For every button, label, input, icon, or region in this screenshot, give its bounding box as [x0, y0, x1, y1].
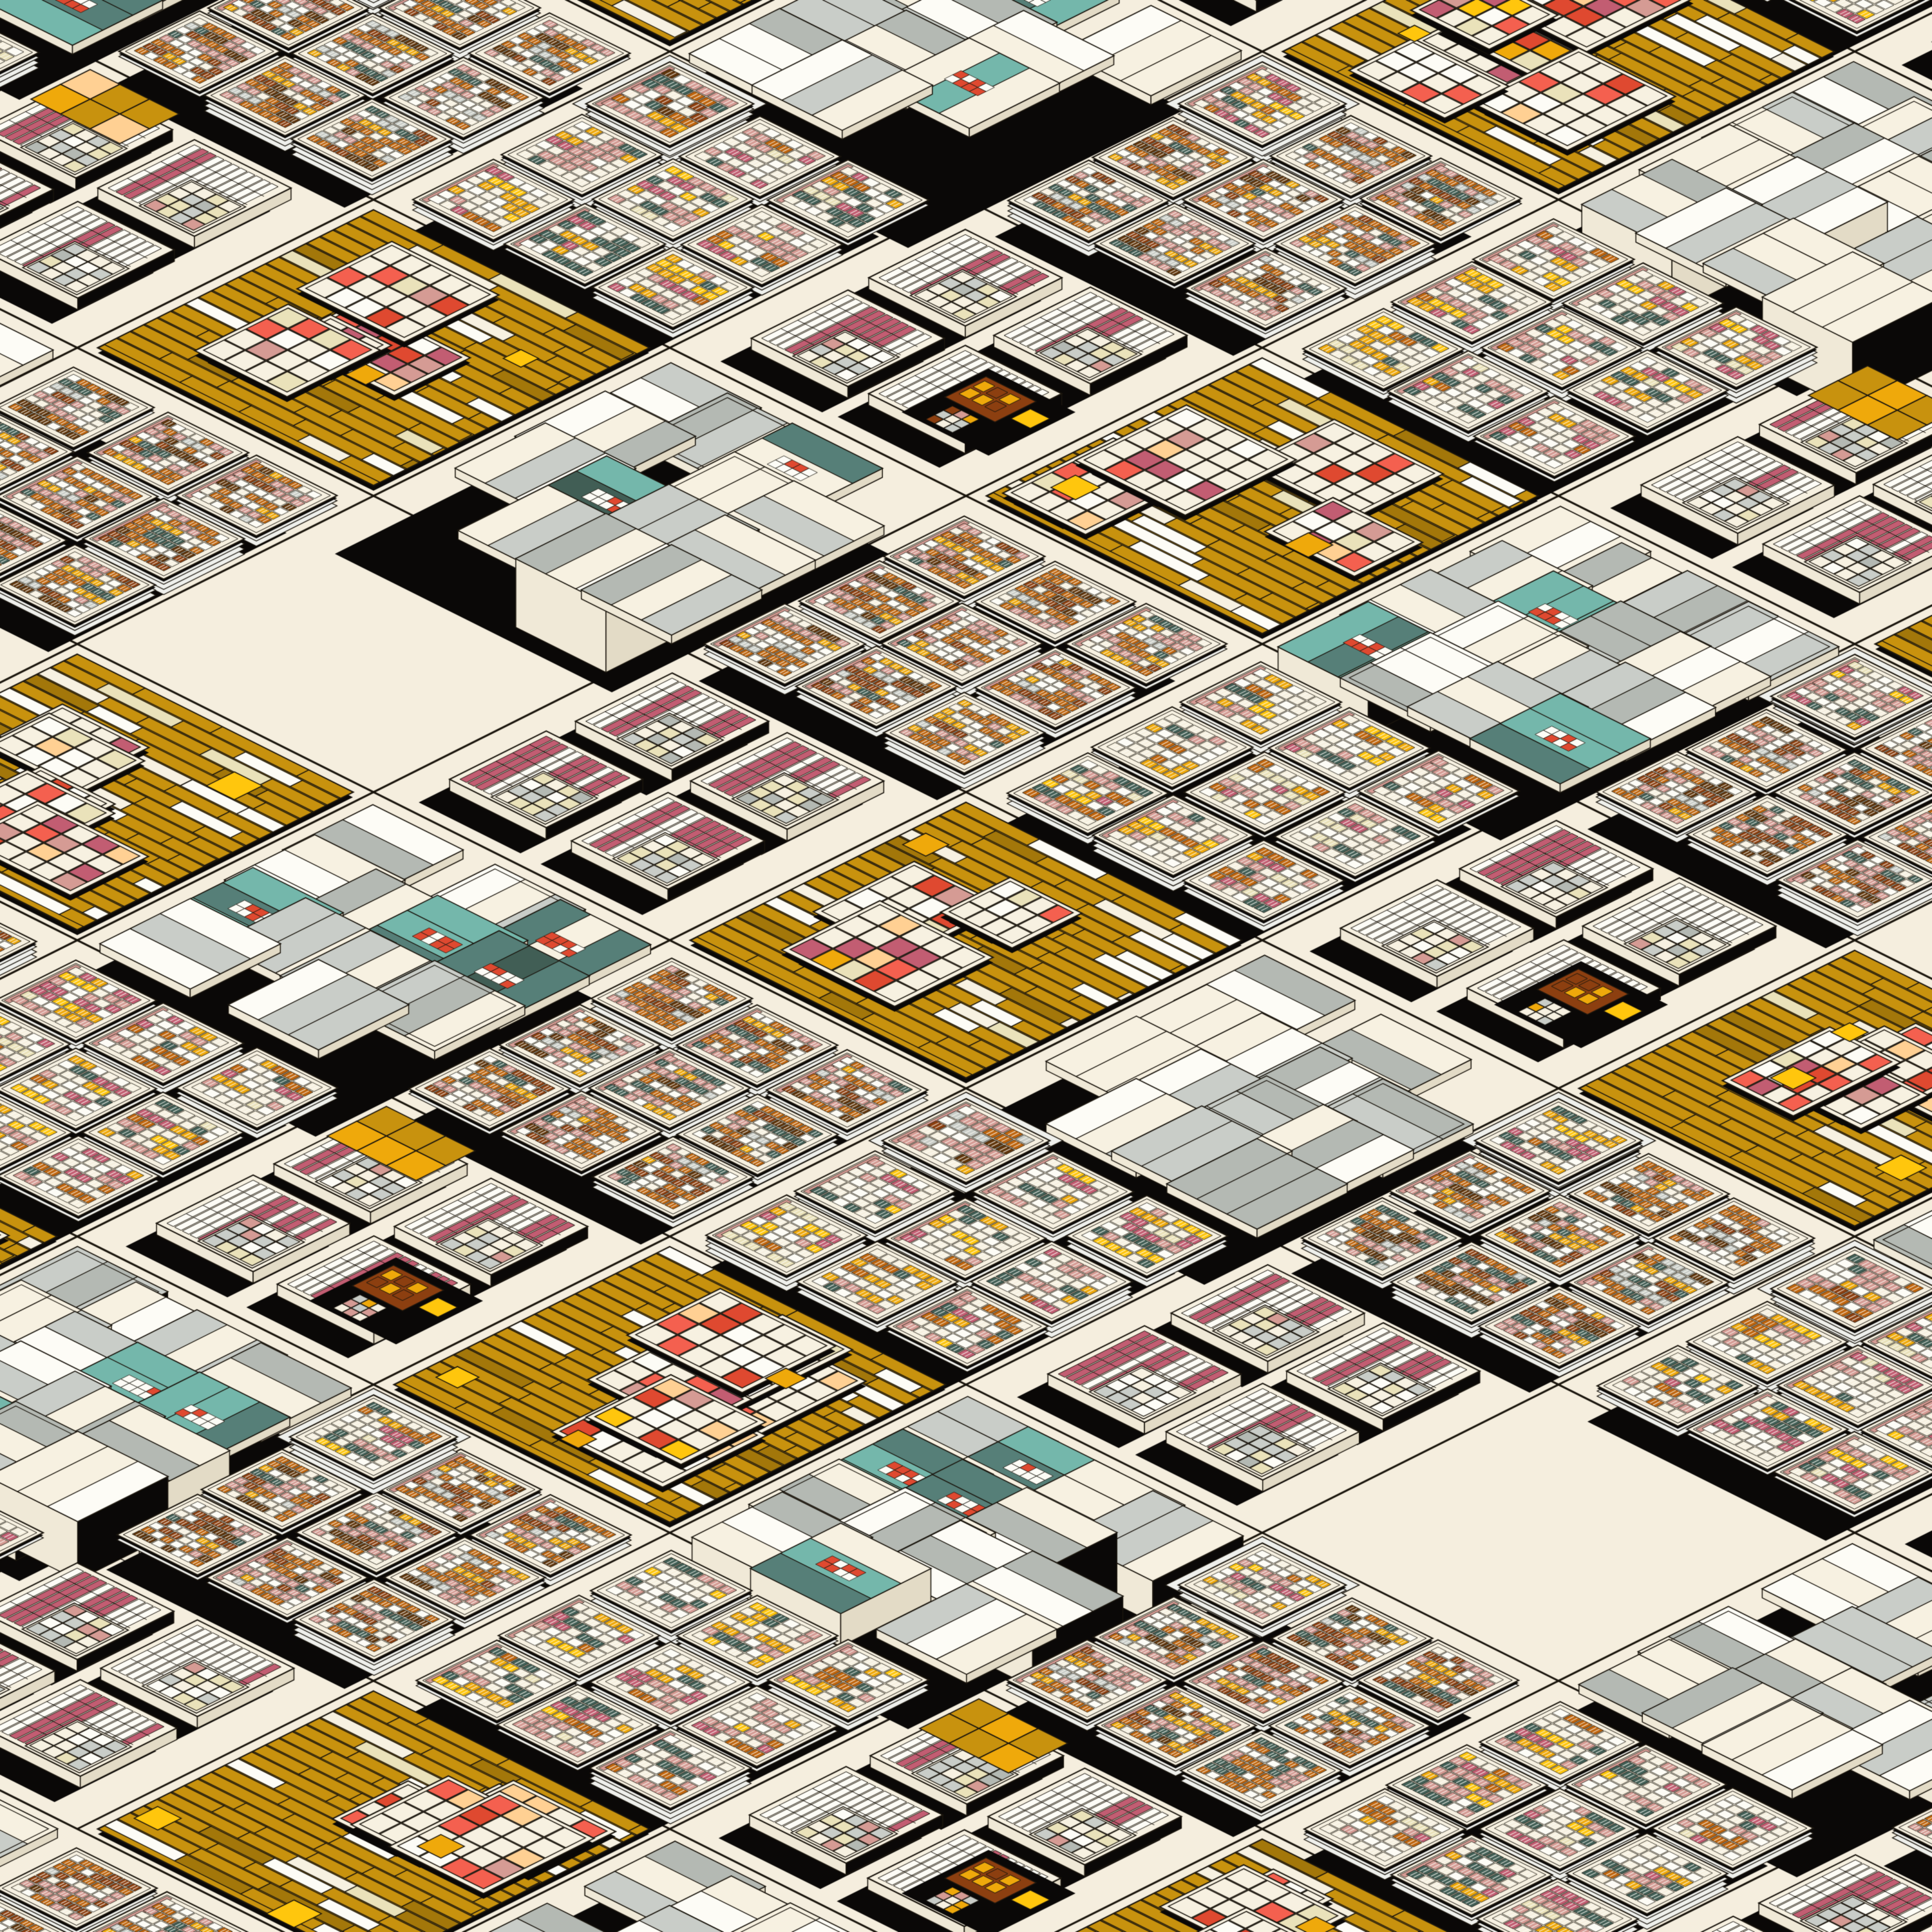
- isometric-chip-city-canvas: [0, 0, 1932, 1932]
- generative-artwork-frame: [0, 0, 1932, 1932]
